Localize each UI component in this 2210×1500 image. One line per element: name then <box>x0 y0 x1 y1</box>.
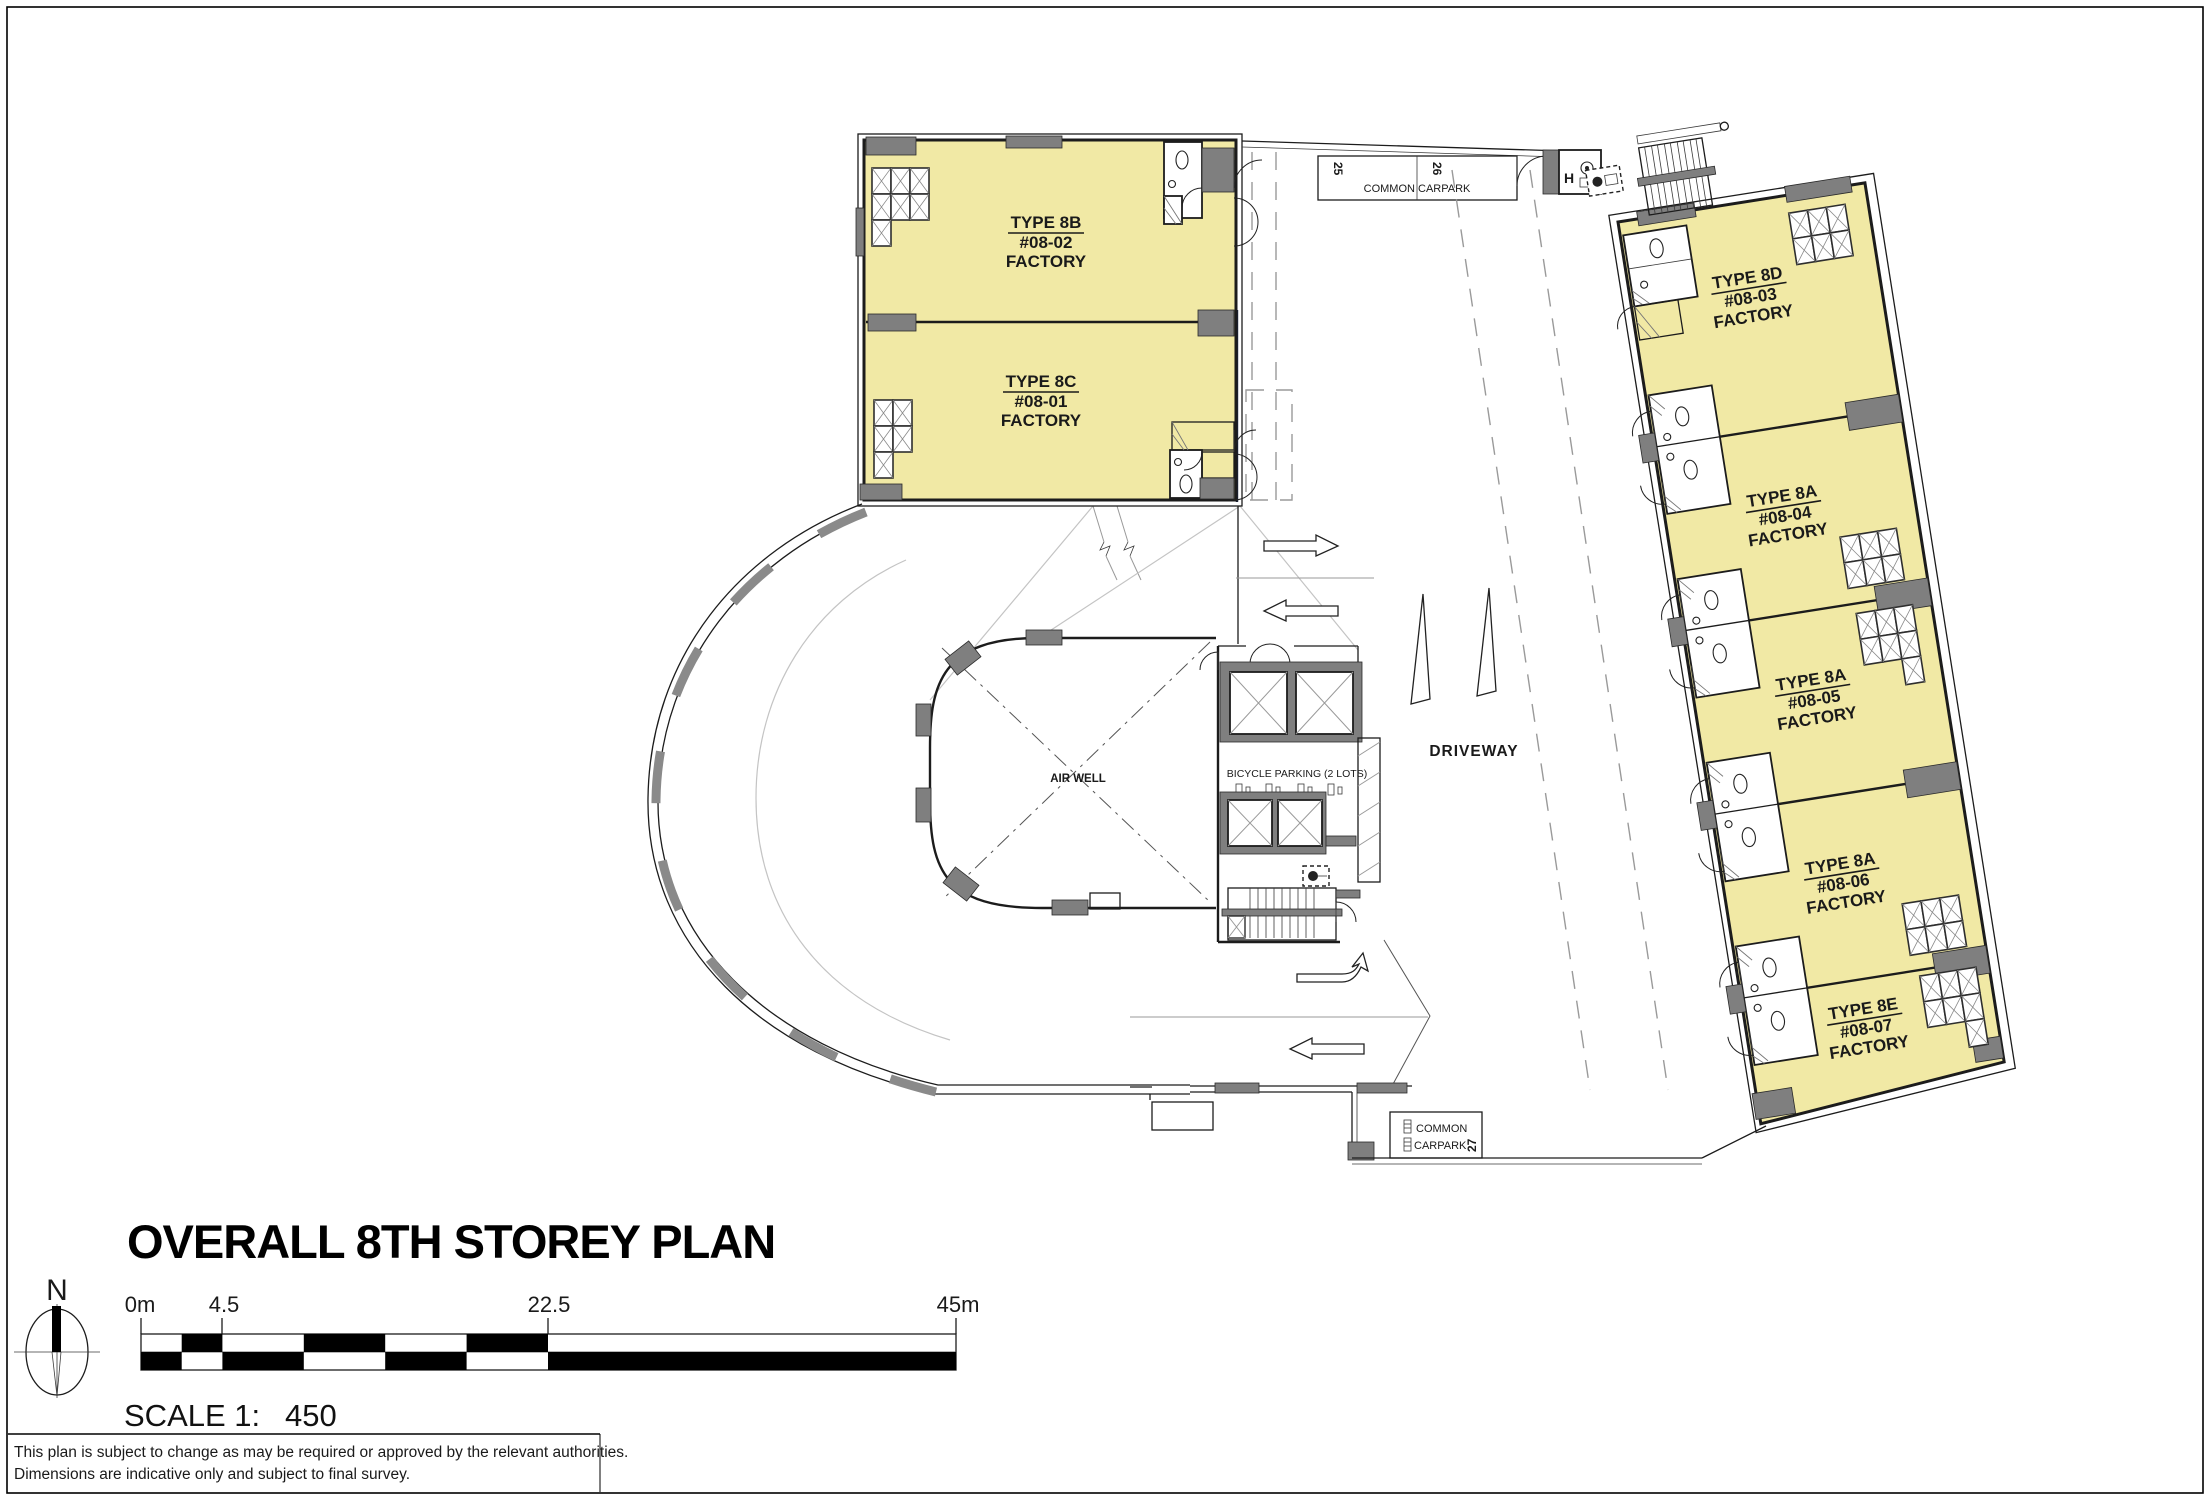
arrow-left-icon <box>1264 600 1338 621</box>
unit-8c-type: TYPE 8C <box>1006 372 1077 391</box>
scale-tick-3: 45m <box>937 1292 980 1317</box>
toilet-cluster <box>1627 385 1731 517</box>
fire-hose-icon <box>1303 866 1329 886</box>
note-line-2: Dimensions are indicative only and subje… <box>14 1466 410 1483</box>
scale-prefix: SCALE 1: <box>124 1398 260 1433</box>
driveway-label: DRIVEWAY <box>1429 743 1518 760</box>
lift-bank-lower <box>1220 792 1356 854</box>
fire-extinguisher-icon <box>1586 165 1624 196</box>
unit-8b-type: TYPE 8B <box>1011 213 1082 232</box>
stair-top <box>1631 122 1740 216</box>
scale-bar: 0m 4.5 22.5 45m <box>125 1292 980 1370</box>
notes-box: This plan is subject to change as may be… <box>8 1434 628 1492</box>
central-core: BICYCLE PARKING (2 LOTS) <box>1200 644 1380 942</box>
lot-26: 26 <box>1430 162 1444 176</box>
scale-tick-1: 4.5 <box>209 1292 240 1317</box>
lift-bank-upper <box>1220 662 1362 742</box>
corridor <box>1237 152 1292 644</box>
window-grid <box>872 168 929 220</box>
north-arrow-icon: N <box>14 1274 100 1398</box>
top-strip: COMMON CARPARK 25 26 H <box>1242 141 1601 200</box>
carpark-bottom-line2: CARPARK <box>1414 1140 1467 1152</box>
stair-lower <box>1222 888 1360 940</box>
page-title: OVERALL 8TH STOREY PLAN <box>127 1215 775 1268</box>
hose-reel-label: H <box>1564 170 1574 186</box>
air-well-label: AIR WELL <box>1050 773 1106 785</box>
arrow-down-icon <box>1411 594 1430 704</box>
common-carpark-top: COMMON CARPARK 25 26 <box>1318 156 1517 200</box>
floor-plan-page: TYPE 8B #08-02 FACTORY TYPE 8C #08-01 FA… <box>0 0 2210 1500</box>
common-carpark-bottom: COMMON CARPARK 27 <box>1390 1112 1482 1158</box>
bicycle-parking-label: BICYCLE PARKING (2 LOTS) <box>1227 768 1367 780</box>
carpark-bottom-line1: COMMON <box>1416 1123 1467 1135</box>
arrow-down-icon <box>1477 588 1496 696</box>
unit-8c-number: #08-01 <box>1015 392 1068 411</box>
scale-tick-2: 22.5 <box>528 1292 571 1317</box>
lot-27: 27 <box>1465 1138 1479 1152</box>
arrow-right-icon <box>1264 535 1338 556</box>
arrow-left-icon <box>1290 1038 1364 1059</box>
bottom-boundary: COMMON CARPARK 27 <box>1130 1083 1766 1164</box>
scale-tick-0: 0m <box>125 1292 156 1317</box>
scale-value: 450 <box>285 1398 337 1433</box>
unit-8b-number: #08-02 <box>1020 233 1073 252</box>
north-label: N <box>46 1274 68 1307</box>
arrow-curve-up-icon <box>1297 953 1368 982</box>
floor-plan-drawing: TYPE 8B #08-02 FACTORY TYPE 8C #08-01 FA… <box>0 0 2210 1500</box>
note-line-1: This plan is subject to change as may be… <box>14 1444 628 1461</box>
title-block: OVERALL 8TH STOREY PLAN N 0m 4.5 22.5 45… <box>8 1215 979 1492</box>
window-grid <box>1789 204 1853 264</box>
air-well: AIR WELL <box>916 630 1216 915</box>
right-building-block: TYPE 8D #08-03 FACTORY TYPE 8A #08-04 FA… <box>1581 100 2018 1135</box>
left-building-block: TYPE 8B #08-02 FACTORY TYPE 8C #08-01 FA… <box>856 134 1262 506</box>
unit-8c-use: FACTORY <box>1001 411 1082 430</box>
lot-25: 25 <box>1331 162 1345 176</box>
unit-8b-use: FACTORY <box>1006 252 1087 271</box>
